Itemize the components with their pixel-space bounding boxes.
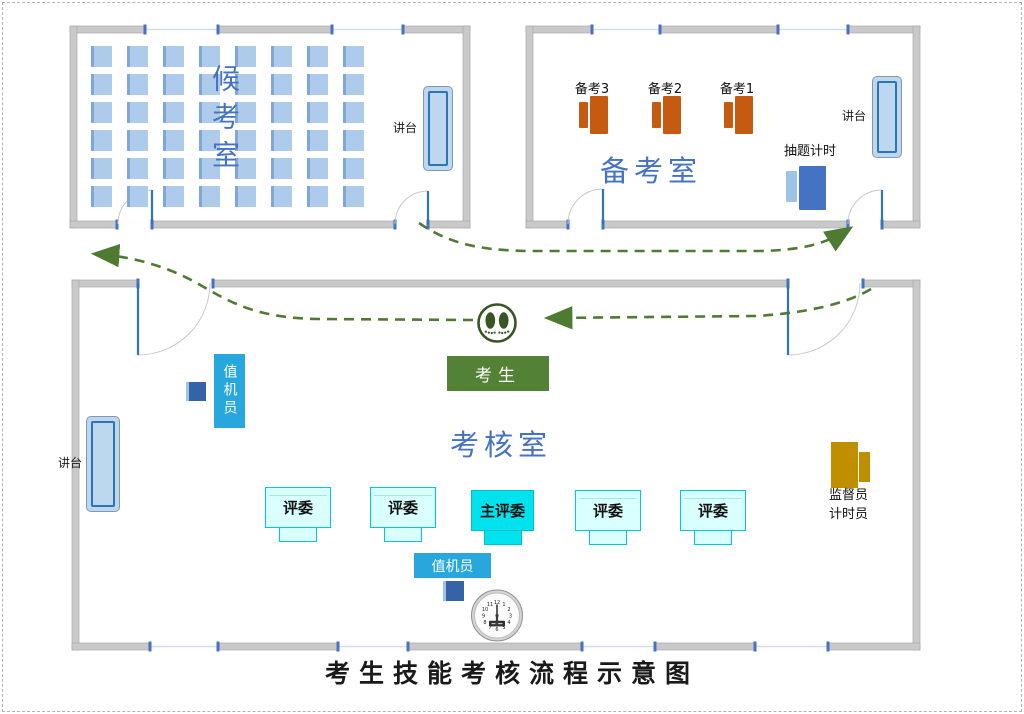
seat	[307, 130, 328, 151]
operator-bottom-box: 值机员	[414, 553, 491, 578]
operator-top-box: 值机员	[214, 354, 245, 428]
seat	[127, 46, 148, 67]
seat	[343, 46, 364, 67]
candidate-box: 考生	[447, 356, 549, 391]
seat	[127, 74, 148, 95]
supervisor-desk	[831, 442, 858, 488]
supervisor-chair	[859, 452, 870, 482]
prep-desk-1-label: 备考1	[715, 78, 759, 97]
seat	[163, 158, 184, 179]
exam-room-name: 考核室	[450, 422, 552, 464]
timer-station-label: 抽题计时	[778, 140, 842, 159]
prep-room-podium-label: 讲台	[842, 107, 866, 124]
seat	[91, 102, 112, 123]
seat	[271, 186, 292, 207]
seat	[199, 186, 220, 207]
seat	[271, 130, 292, 151]
seat	[163, 46, 184, 67]
seat	[271, 46, 292, 67]
seat	[163, 102, 184, 123]
operator-bottom-computer	[443, 581, 464, 601]
seat	[91, 46, 112, 67]
seat	[163, 130, 184, 151]
timer-station-chair	[786, 171, 797, 202]
seat	[91, 158, 112, 179]
seat	[307, 102, 328, 123]
prep-desk-3	[590, 96, 608, 134]
seat	[163, 186, 184, 207]
seat	[307, 46, 328, 67]
prep-desk-3-chair	[579, 102, 588, 128]
seat	[343, 130, 364, 151]
waiting-room-podium	[423, 86, 453, 171]
prep-desk-1	[735, 96, 753, 134]
seat	[343, 102, 364, 123]
prep-room-name: 备考室	[600, 148, 702, 190]
prep-desk-2-label: 备考2	[643, 78, 687, 97]
supervisor-label: 监督员 计时员	[829, 487, 868, 525]
judge-desk-3: 评委	[575, 490, 641, 545]
prep-room-podium	[872, 76, 902, 158]
seat	[271, 74, 292, 95]
seat	[235, 186, 256, 207]
diagram-title: 考生技能考核流程示意图	[0, 654, 1024, 690]
floor-plan-diagram: 12 1 2 3 4 5 6 7 8 9 10 11 候考室	[0, 0, 1024, 714]
seat	[343, 186, 364, 207]
judge-desk-4: 评委	[680, 490, 746, 545]
chief-judge-desk: 主评委	[471, 490, 534, 545]
seat	[127, 158, 148, 179]
operator-top-computer	[186, 382, 206, 401]
prep-desk-2-chair	[652, 102, 661, 128]
waiting-room-name: 候考室	[204, 64, 244, 178]
seat	[343, 158, 364, 179]
seat	[91, 130, 112, 151]
prep-desk-3-label: 备考3	[570, 78, 614, 97]
seat	[307, 186, 328, 207]
exam-room-podium	[86, 416, 120, 512]
seat	[271, 158, 292, 179]
seat	[271, 102, 292, 123]
seat	[91, 186, 112, 207]
seat	[307, 74, 328, 95]
seat	[307, 158, 328, 179]
judge-desk-1: 评委	[265, 487, 331, 542]
waiting-room-podium-label: 讲台	[393, 119, 417, 136]
prep-desk-2	[663, 96, 681, 134]
seat	[127, 102, 148, 123]
seat	[127, 130, 148, 151]
timer-station-desk	[799, 166, 826, 210]
exam-room-podium-label: 讲台	[58, 454, 82, 471]
seat	[127, 186, 148, 207]
seat	[91, 74, 112, 95]
seat	[343, 74, 364, 95]
prep-desk-1-chair	[724, 102, 733, 128]
judge-desk-2: 评委	[370, 487, 436, 542]
seat	[163, 74, 184, 95]
